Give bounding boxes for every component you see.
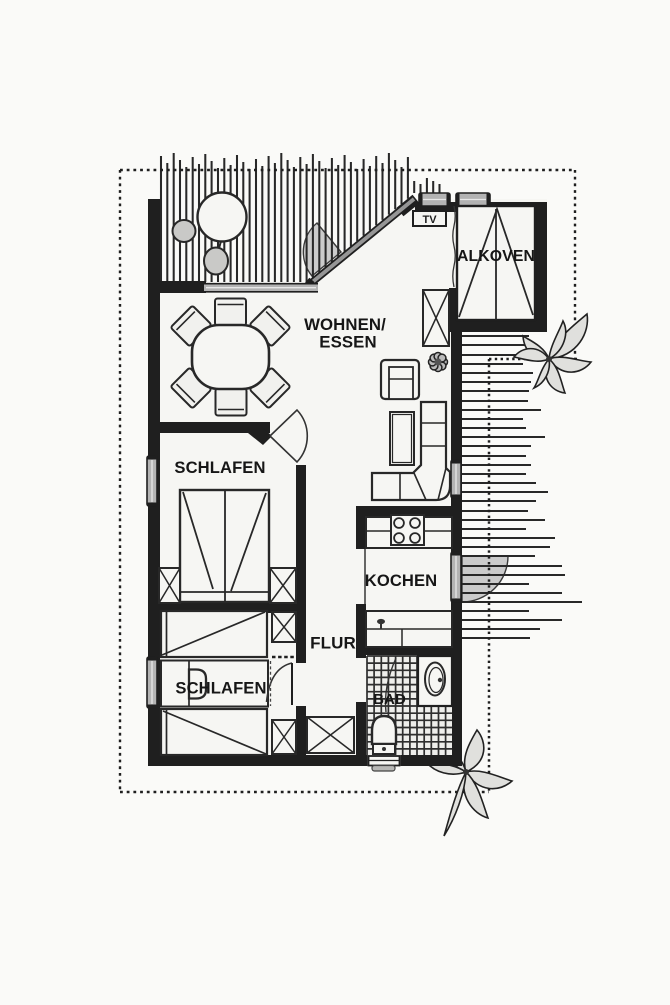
svg-text:KOCHEN: KOCHEN bbox=[365, 571, 438, 590]
svg-text:SCHLAFEN: SCHLAFEN bbox=[175, 679, 266, 698]
svg-text:ESSEN: ESSEN bbox=[319, 333, 376, 352]
svg-text:ALKOVEN: ALKOVEN bbox=[457, 248, 535, 265]
svg-text:SCHLAFEN: SCHLAFEN bbox=[174, 458, 265, 477]
svg-text:FLUR: FLUR bbox=[310, 634, 356, 653]
svg-text:WOHNEN/: WOHNEN/ bbox=[304, 315, 386, 334]
svg-text:TV: TV bbox=[422, 214, 437, 226]
svg-text:BAD: BAD bbox=[373, 691, 406, 708]
